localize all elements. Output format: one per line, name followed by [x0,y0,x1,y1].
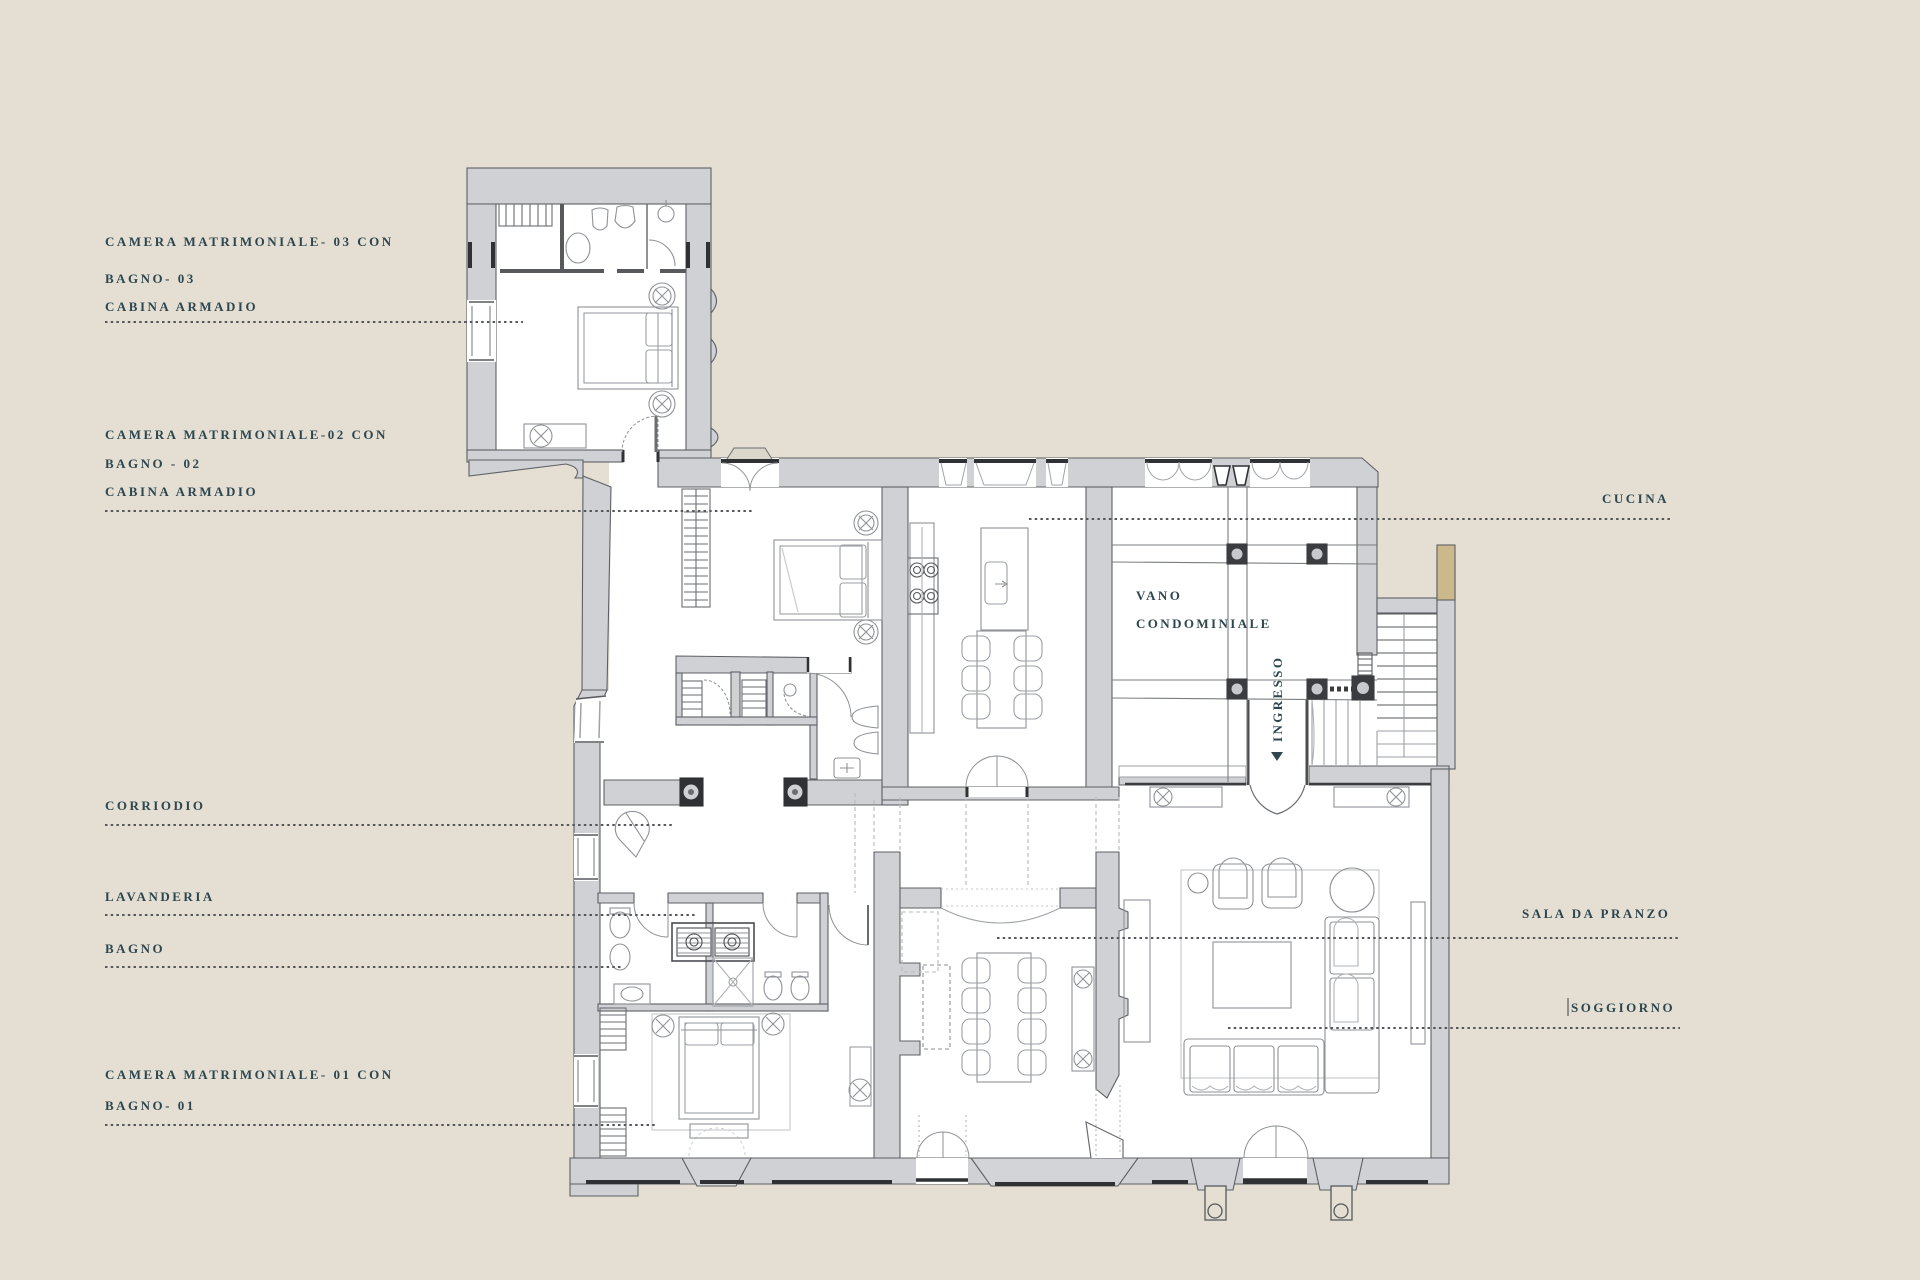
svg-text:CONDOMINIALE: CONDOMINIALE [1136,616,1272,631]
svg-text:BAGNO- 01: BAGNO- 01 [105,1098,196,1113]
svg-text:CABINA ARMADIO: CABINA ARMADIO [105,299,258,314]
svg-text:SOGGIORNO: SOGGIORNO [1571,1000,1675,1015]
svg-text:BAGNO - 02: BAGNO - 02 [105,456,202,471]
svg-text:CAMERA MATRIMONIALE- 03 CON: CAMERA MATRIMONIALE- 03 CON [105,234,394,249]
svg-text:VANO: VANO [1136,588,1182,603]
svg-text:CAMERA MATRIMONIALE- 01 CON: CAMERA MATRIMONIALE- 01 CON [105,1067,394,1082]
svg-text:CORRIODIO: CORRIODIO [105,798,206,813]
svg-text:BAGNO- 03: BAGNO- 03 [105,271,196,286]
svg-text:LAVANDERIA: LAVANDERIA [105,889,215,904]
svg-text:SALA DA PRANZO: SALA DA PRANZO [1522,906,1670,921]
svg-text:INGRESSO: INGRESSO [1270,656,1285,742]
svg-text:CAMERA MATRIMONIALE-02 CON: CAMERA MATRIMONIALE-02 CON [105,427,388,442]
svg-text:CUCINA: CUCINA [1602,491,1669,506]
svg-text:CABINA ARMADIO: CABINA ARMADIO [105,484,258,499]
svg-text:BAGNO: BAGNO [105,941,165,956]
